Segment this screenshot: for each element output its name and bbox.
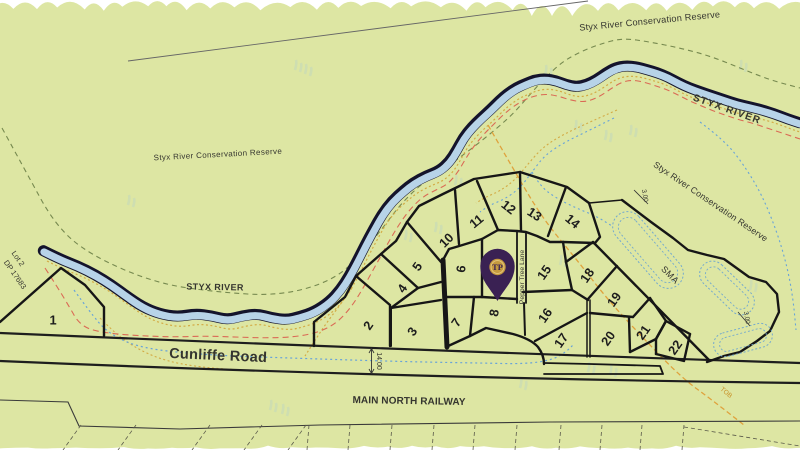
svg-text:1: 1 — [49, 312, 56, 327]
svg-text:STYX RIVER: STYX RIVER — [186, 281, 244, 292]
svg-text:MAIN NORTH RAILWAY: MAIN NORTH RAILWAY — [352, 395, 466, 408]
svg-text:14.00: 14.00 — [375, 352, 382, 370]
svg-text:Pepper Tree Lane: Pepper Tree Lane — [519, 250, 526, 305]
svg-text:TP: TP — [492, 263, 503, 272]
